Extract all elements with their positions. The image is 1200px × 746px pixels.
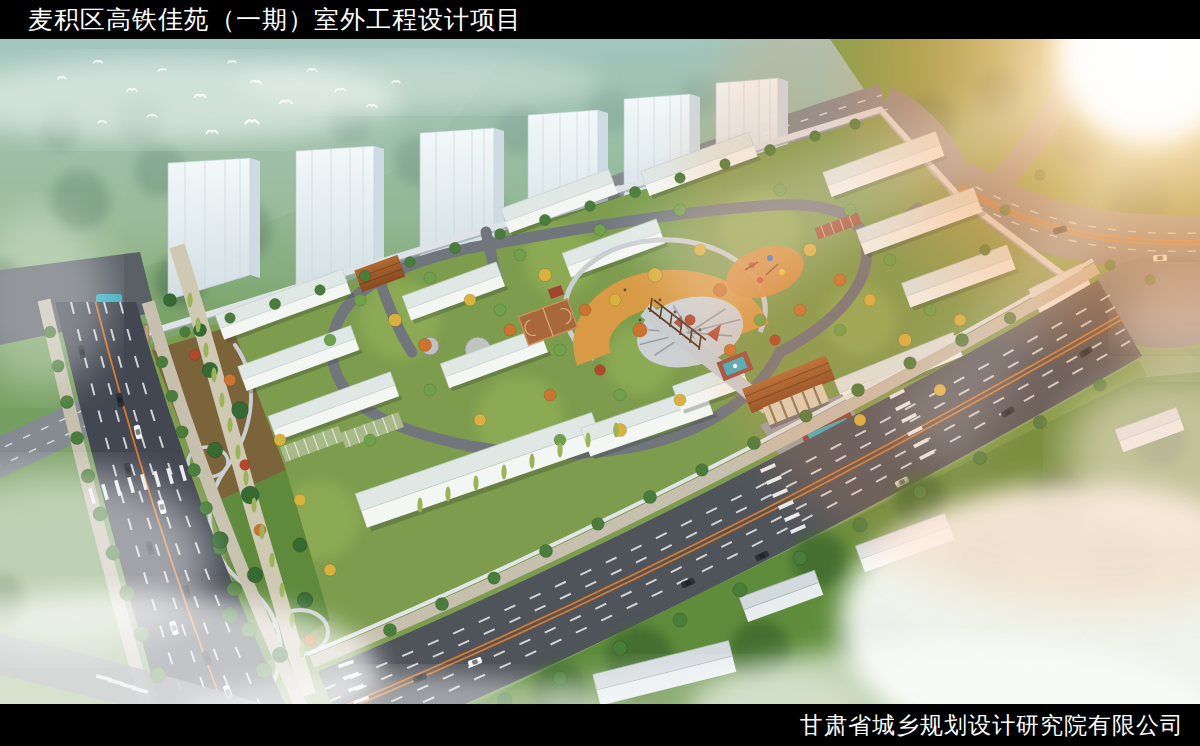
credit-bar: 甘肃省城乡规划设计研究院有限公司 (0, 704, 1200, 746)
presentation-board: 麦积区高铁佳苑（一期）室外工程设计项目 (0, 0, 1200, 746)
page-title: 麦积区高铁佳苑（一期）室外工程设计项目 (0, 3, 522, 36)
design-institute-name: 甘肃省城乡规划设计研究院有限公司 (800, 710, 1200, 741)
title-bar: 麦积区高铁佳苑（一期）室外工程设计项目 (0, 0, 1200, 39)
masterplan-rendering (0, 39, 1200, 704)
